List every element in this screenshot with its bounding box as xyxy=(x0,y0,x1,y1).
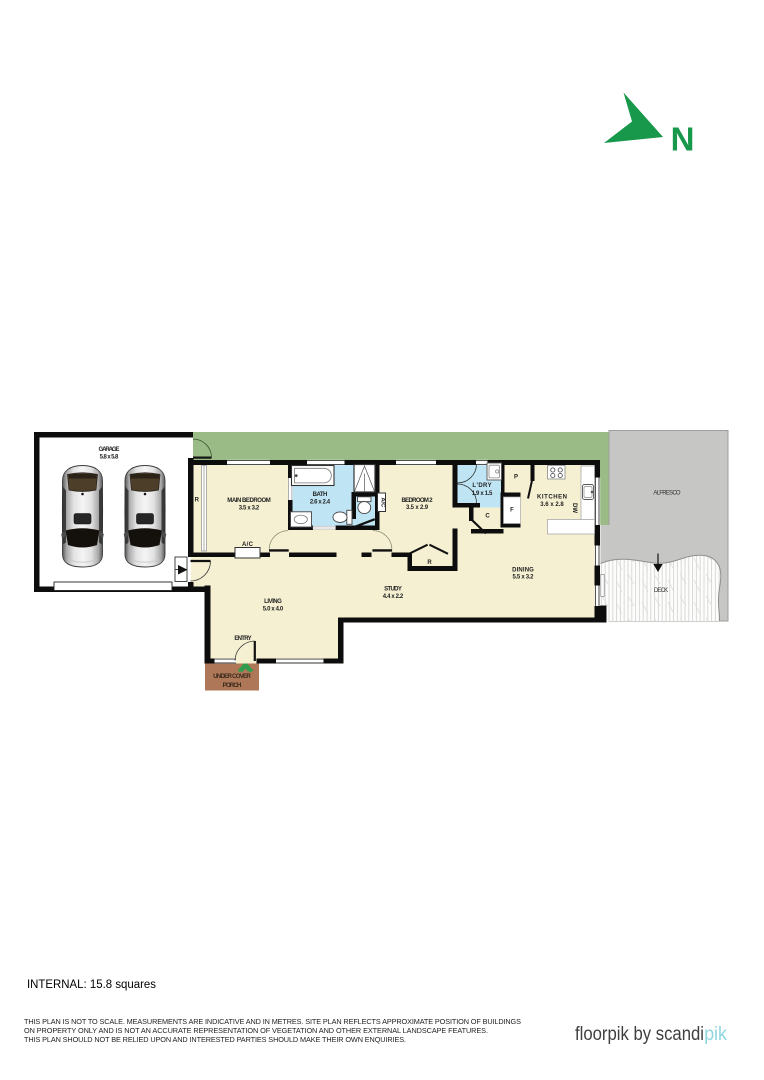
svg-text:3.6 x 2.8: 3.6 x 2.8 xyxy=(540,502,564,508)
svg-text:2.6 x 2.4: 2.6 x 2.4 xyxy=(310,500,331,506)
svg-text:4.4 x 2.2: 4.4 x 2.2 xyxy=(383,594,404,600)
svg-text:INTERNAL: 15.8 squares: INTERNAL: 15.8 squares xyxy=(27,979,156,991)
svg-text:THIS PLAN SHOULD NOT BE RELIED: THIS PLAN SHOULD NOT BE RELIED UPON AND … xyxy=(24,1035,406,1044)
svg-text:KITCHEN: KITCHEN xyxy=(537,495,567,501)
svg-text:ALFRESCO: ALFRESCO xyxy=(653,491,681,497)
svg-text:A/C: A/C xyxy=(380,497,386,507)
svg-text:C: C xyxy=(485,514,490,520)
svg-text:DINING: DINING xyxy=(512,568,534,574)
svg-text:N: N xyxy=(671,121,695,158)
svg-text:GARAGE: GARAGE xyxy=(98,447,119,453)
svg-text:THIS PLAN IS NOT TO SCALE. MEA: THIS PLAN IS NOT TO SCALE. MEASUREMENTS … xyxy=(24,1017,521,1026)
svg-text:DW: DW xyxy=(571,503,577,513)
svg-text:BEDROOM 2: BEDROOM 2 xyxy=(401,498,433,504)
svg-text:1.9 x 1.5: 1.9 x 1.5 xyxy=(472,491,493,497)
svg-text:3.5 x 3.2: 3.5 x 3.2 xyxy=(239,506,260,512)
svg-text:pik: pik xyxy=(704,1024,727,1045)
svg-text:R: R xyxy=(195,498,200,504)
svg-text:3.5 x 2.9: 3.5 x 2.9 xyxy=(406,505,429,511)
svg-text:BATH: BATH xyxy=(313,492,328,498)
svg-text:F: F xyxy=(510,508,514,514)
svg-text:UNDER COVER: UNDER COVER xyxy=(213,673,251,680)
svg-text:P: P xyxy=(514,475,518,481)
svg-text:floorpik by scandi: floorpik by scandi xyxy=(575,1024,704,1045)
svg-text:5.5 x 3.2: 5.5 x 3.2 xyxy=(513,575,535,581)
svg-text:5.8 x 5.8: 5.8 x 5.8 xyxy=(100,455,119,461)
svg-text:5.0 x 4.0: 5.0 x 4.0 xyxy=(263,607,284,613)
svg-text:A/C: A/C xyxy=(242,542,254,548)
svg-text:LIVING: LIVING xyxy=(264,599,282,605)
svg-text:PORCH: PORCH xyxy=(223,682,242,689)
svg-text:MAIN BEDROOM: MAIN BEDROOM xyxy=(227,498,270,504)
svg-text:L'DRY: L'DRY xyxy=(472,483,491,489)
svg-text:R: R xyxy=(427,560,432,566)
svg-text:ENTRY: ENTRY xyxy=(234,636,251,642)
svg-text:DECK: DECK xyxy=(654,588,668,594)
svg-text:STUDY: STUDY xyxy=(384,587,402,593)
svg-text:ON PROPERTY ONLY AND IS NOT AN: ON PROPERTY ONLY AND IS NOT AN ACCURATE … xyxy=(24,1026,488,1035)
